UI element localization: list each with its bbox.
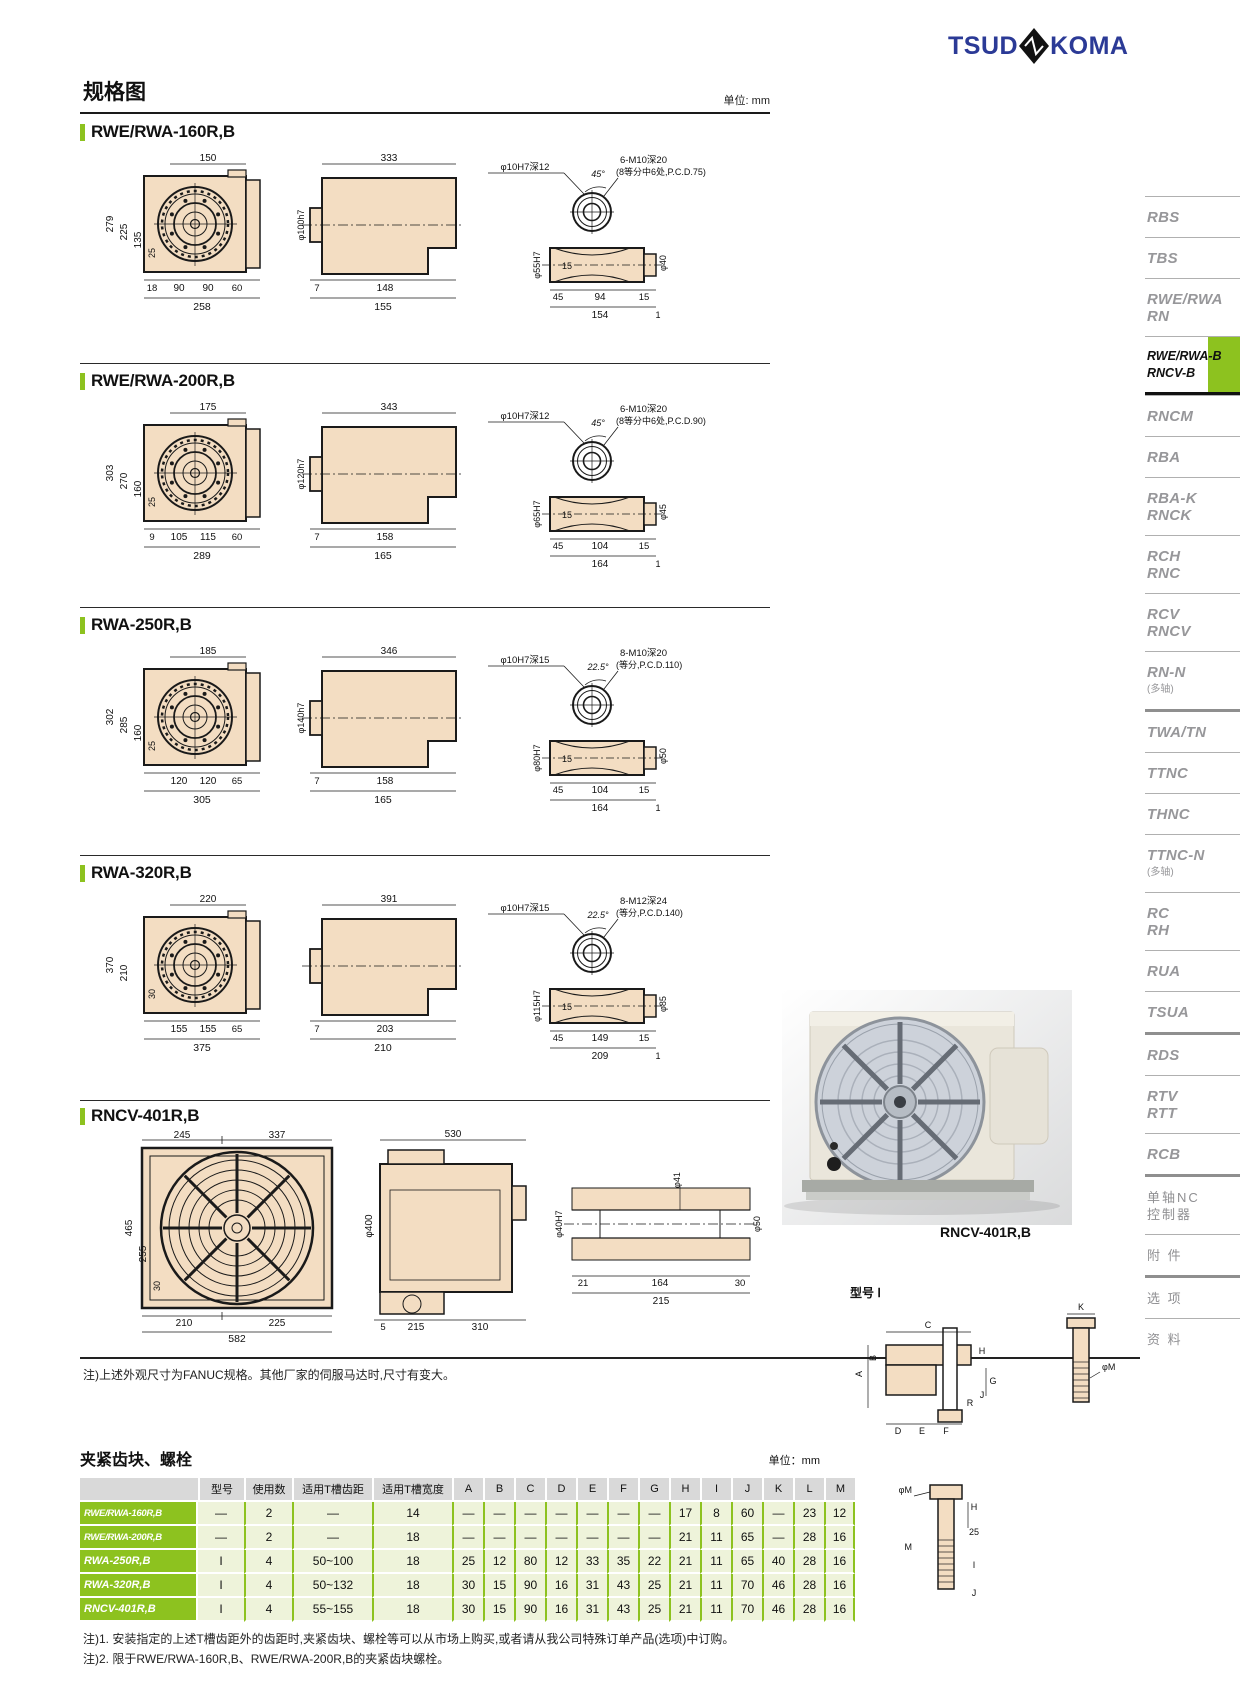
sidebar-item-rcb[interactable]: RCB — [1145, 1133, 1240, 1174]
table-cell: 15 — [483, 1574, 514, 1598]
table-cell: 21 — [669, 1598, 700, 1622]
drawing-rwe-rwa-200: 17530327016025910511560289343φ120h771581… — [80, 399, 780, 574]
sidebar-item-label: (多轴) — [1147, 681, 1240, 698]
dim-label: φ115H7 — [532, 990, 542, 1022]
section-title: RNCV-401R,B — [91, 1106, 199, 1126]
dim-label: F — [943, 1426, 949, 1436]
sidebar-item-label: RNCV-B — [1147, 365, 1240, 382]
dim-label: 270 — [119, 472, 130, 489]
table-cell: 4 — [244, 1598, 292, 1622]
table-cell: 17 — [669, 1502, 700, 1526]
dim-label: φ41 — [672, 1172, 682, 1188]
dim-label: 158 — [377, 532, 394, 543]
table-cell: 30 — [452, 1574, 483, 1598]
model-type-label: 型号 Ⅰ — [850, 1284, 881, 1301]
sidebar-item-label: RTT — [1147, 1105, 1240, 1122]
dim-label: φ50 — [752, 1216, 762, 1232]
dim-label: 22.5° — [586, 662, 609, 672]
dim-label: 45° — [591, 169, 605, 179]
dim-label: (等分,P.C.D.110) — [616, 659, 682, 670]
dim-label: 1 — [655, 1051, 660, 1061]
sidebar-item-label: RNC — [1147, 565, 1240, 582]
dim-label: 25 — [147, 497, 157, 507]
sidebar-item-rua[interactable]: RUA — [1145, 950, 1240, 991]
fanuc-note: 注)上述外观尺寸为FANUC规格。其他厂家的伺服马达时,尺寸有变大。 — [83, 1366, 455, 1383]
dim-label: 8-M10深20 — [620, 648, 667, 659]
dim-label: 7 — [314, 283, 319, 294]
sidebar-item-rba-k[interactable]: RBA-KRNCK — [1145, 477, 1240, 535]
table-cell: — — [638, 1526, 669, 1550]
dim-label: 303 — [105, 464, 116, 481]
table-cell: 11 — [700, 1574, 731, 1598]
table-cell: 80 — [514, 1550, 545, 1574]
table-cell: — — [452, 1526, 483, 1550]
table-cell: I — [198, 1598, 244, 1622]
product-photo — [782, 990, 1072, 1225]
sidebar-item-label: RDS — [1147, 1047, 1240, 1064]
table-header: H — [669, 1478, 700, 1502]
sidebar-item-label: 资 料 — [1147, 1331, 1240, 1348]
green-bar-icon — [80, 617, 85, 634]
table-cell: — — [762, 1526, 793, 1550]
sidebar-item-rba[interactable]: RBA — [1145, 436, 1240, 477]
section-divider — [80, 607, 770, 608]
dim-label: 220 — [200, 894, 217, 905]
dim-label: 45 — [553, 292, 564, 303]
dim-label: J — [980, 1390, 985, 1400]
dim-label: 582 — [228, 1333, 246, 1345]
section-header-rwe-rwa-160: RWE/RWA-160R,B — [80, 122, 235, 142]
green-bar-icon — [80, 865, 85, 882]
table-cell: 18 — [372, 1526, 452, 1550]
dim-label: 465 — [124, 1219, 135, 1236]
dim-label: 22.5° — [586, 910, 609, 920]
table-cell: — — [514, 1502, 545, 1526]
table-cell: 11 — [700, 1598, 731, 1622]
logo-text-right: KOMA — [1050, 32, 1128, 61]
table-cell: 55~155 — [292, 1598, 372, 1622]
sidebar-item-label: TBS — [1147, 250, 1240, 267]
dim-label: φ100h7 — [296, 210, 306, 241]
table-header: L — [793, 1478, 824, 1502]
table-cell: 46 — [762, 1598, 793, 1622]
sidebar-item-label: 单轴NC — [1147, 1189, 1240, 1206]
dim-label: φ45 — [658, 504, 668, 520]
dim-label: φM — [899, 1485, 912, 1495]
section-drawing: 22037021030155155653753917203210φ10H7深15… — [105, 894, 683, 1062]
dim-label: K — [1078, 1302, 1084, 1312]
sidebar-item-label: RH — [1147, 922, 1240, 939]
dim-label: 302 — [105, 708, 116, 725]
dim-label: 245 — [174, 1130, 191, 1141]
section-header-rncv-401: RNCV-401R,B — [80, 1106, 199, 1126]
dim-label: 530 — [445, 1130, 462, 1140]
sidebar-item-cn-22[interactable]: 选 项 — [1145, 1275, 1240, 1318]
table-cell: 25 — [452, 1550, 483, 1574]
section-divider — [80, 855, 770, 856]
table-cell: 2 — [244, 1502, 292, 1526]
section-header-rwe-rwa-200: RWE/RWA-200R,B — [80, 371, 235, 391]
dim-label: 225 — [269, 1318, 286, 1329]
model-name-cell: RWA-320R,B — [80, 1574, 198, 1598]
dim-label: 203 — [377, 1024, 394, 1035]
section-divider — [80, 1100, 770, 1101]
dim-label: 289 — [193, 550, 211, 562]
table-cell: 28 — [793, 1550, 824, 1574]
clamp-unit-label: 单位：mm — [690, 1452, 820, 1468]
clamp-diagram: CABGHJDEFRKφMφM25MHIJ — [846, 1300, 1146, 1630]
dim-label: 305 — [193, 794, 211, 806]
dim-label: 333 — [381, 153, 398, 164]
dim-label: 90 — [173, 283, 185, 294]
title-rule — [80, 112, 770, 114]
table-cell: 18 — [372, 1574, 452, 1598]
dim-label: 25 — [147, 741, 157, 751]
dim-label: 15 — [562, 754, 572, 764]
table-cell: — — [292, 1502, 372, 1526]
table-cell: 15 — [483, 1598, 514, 1622]
dim-label: 115 — [200, 532, 216, 543]
table-cell: 21 — [669, 1526, 700, 1550]
dim-label: 165 — [374, 794, 392, 806]
table-cell: 28 — [793, 1598, 824, 1622]
dim-label: 285 — [119, 716, 130, 733]
table-cell: 90 — [514, 1574, 545, 1598]
model-name-cell: RWE/RWA-200R,B — [80, 1526, 198, 1550]
dim-label: 215 — [408, 1322, 425, 1333]
sidebar-item-label: RBA — [1147, 449, 1240, 466]
table-header: A — [452, 1478, 483, 1502]
table-header: D — [545, 1478, 576, 1502]
unit-label: 单位: mm — [640, 92, 770, 108]
table-cell: — — [198, 1502, 244, 1526]
sidebar-item-rwe-rwa[interactable]: RWE/RWARN — [1145, 278, 1240, 336]
dim-label: 258 — [193, 301, 211, 313]
catalog-page: TSUD KOMA 规格图 单位: mm RWE/RWA-160R,B 1502… — [0, 0, 1240, 1688]
dim-label: 15 — [639, 292, 650, 303]
table-header: 适用T槽宽度 — [372, 1478, 452, 1502]
sidebar-item-label: TSUA — [1147, 1004, 1240, 1021]
dim-label: φ40H7 — [554, 1210, 564, 1237]
dim-label: (8等分中6处,P.C.D.90) — [616, 415, 706, 426]
dim-label: 1 — [655, 310, 660, 320]
dim-label: φ10H7深12 — [501, 162, 550, 173]
dim-label: 25 — [969, 1527, 979, 1537]
dim-label: J — [972, 1588, 977, 1598]
drawing-rwa-250: 1853022851602512012065305346φ140h7715816… — [80, 643, 780, 818]
clamp-bolt-figures: CABGHJDEFRKφMφM25MHIJ — [854, 1302, 1115, 1598]
dim-label: 94 — [594, 292, 606, 303]
dim-label: C — [925, 1320, 932, 1330]
dim-label: 7 — [314, 532, 319, 543]
dim-label: 155 — [171, 1024, 188, 1035]
dim-label: φ55H7 — [532, 251, 542, 278]
dim-label: 8-M12深24 — [620, 896, 667, 907]
dim-label: 154 — [592, 310, 609, 321]
sidebar-item-ttnc-n[interactable]: TTNC-N(多轴) — [1145, 834, 1240, 892]
table-cell: 21 — [669, 1574, 700, 1598]
table-cell: 28 — [793, 1574, 824, 1598]
sidebar-item-rtv[interactable]: RTVRTT — [1145, 1075, 1240, 1133]
table-cell: — — [545, 1502, 576, 1526]
sidebar-item-rcv[interactable]: RCVRNCV — [1145, 593, 1240, 651]
table-cell: 21 — [669, 1550, 700, 1574]
dim-label: 337 — [269, 1130, 286, 1141]
table-cell: 11 — [700, 1526, 731, 1550]
clamp-note-1: 注)1. 安装指定的上述T槽齿距外的齿距时,夹紧齿块、螺栓等可以从市场上购买,或… — [83, 1630, 734, 1647]
dim-label: 60 — [232, 532, 243, 543]
dim-label: φ40 — [658, 255, 668, 271]
dim-label: 6-M10深20 — [620, 155, 667, 166]
table-header: F — [607, 1478, 638, 1502]
product-nav: RBSTBSRWE/RWARNRWE/RWA-BRNCV-BRNCMRBARBA… — [1145, 196, 1240, 1359]
dim-label: φ10H7深12 — [501, 411, 550, 422]
table-cell: 50~100 — [292, 1550, 372, 1574]
sidebar-item-label: RNCM — [1147, 408, 1240, 425]
table-header: E — [576, 1478, 607, 1502]
dim-label: 1 — [655, 803, 660, 813]
table-header: 适用T槽齿距 — [292, 1478, 372, 1502]
dim-label: 30 — [147, 989, 157, 999]
table-cell: 60 — [731, 1502, 762, 1526]
table-cell: 90 — [514, 1598, 545, 1622]
table-cell: 46 — [762, 1574, 793, 1598]
table-cell: — — [638, 1502, 669, 1526]
sidebar-item-label: 控制器 — [1147, 1206, 1240, 1223]
dim-label: 175 — [200, 402, 217, 413]
sidebar-item-label: RBS — [1147, 209, 1240, 226]
clamp-table: 型号使用数适用T槽齿距适用T槽宽度ABCDEFGHIJKLMRWE/RWA-16… — [80, 1478, 855, 1622]
table-cell: 18 — [372, 1550, 452, 1574]
sidebar-item-rn-n[interactable]: RN-N(多轴) — [1145, 651, 1240, 709]
dim-label: 370 — [105, 956, 116, 973]
dim-label: 45 — [553, 785, 564, 796]
table-cell: 2 — [244, 1526, 292, 1550]
clamp-section-title: 夹紧齿块、螺栓 — [80, 1446, 192, 1470]
dim-label: 120 — [171, 776, 188, 787]
sidebar-item-rwe-rwa-b[interactable]: RWE/RWA-BRNCV-B — [1145, 336, 1240, 395]
table-cell: 12 — [483, 1550, 514, 1574]
dim-label: φ85 — [658, 996, 668, 1012]
section-title: RWA-320R,B — [91, 863, 192, 883]
green-bar-icon — [80, 1108, 85, 1125]
dim-label: G — [989, 1376, 996, 1386]
dim-label: A — [854, 1371, 864, 1377]
dim-label: 45 — [553, 1033, 564, 1044]
table-header: 型号 — [198, 1478, 244, 1502]
clamp-note-2: 注)2. 限于RWE/RWA-160R,B、RWE/RWA-200R,B的夹紧齿… — [83, 1650, 449, 1667]
table-cell: 35 — [607, 1550, 638, 1574]
dim-label: 45° — [591, 418, 605, 428]
table-cell: — — [292, 1526, 372, 1550]
sidebar-item-thnc[interactable]: THNC — [1145, 793, 1240, 834]
sidebar-item-tsua[interactable]: TSUA — [1145, 991, 1240, 1032]
sidebar-item-label: RCB — [1147, 1146, 1240, 1163]
sidebar-item-label: RTV — [1147, 1088, 1240, 1105]
table-cell: 70 — [731, 1598, 762, 1622]
sidebar-item-label: RBA-K — [1147, 490, 1240, 507]
dim-label: B — [868, 1355, 878, 1361]
model-name-cell: RWE/RWA-160R,B — [80, 1502, 198, 1526]
dim-label: I — [973, 1560, 976, 1570]
dim-label: 30 — [152, 1281, 162, 1291]
dim-label: 164 — [592, 803, 609, 814]
table-cell: 4 — [244, 1574, 292, 1598]
table-cell: — — [576, 1526, 607, 1550]
table-cell: I — [198, 1550, 244, 1574]
drawing-rwe-rwa-160: 1502792251352518909060258333φ100h7714815… — [80, 150, 780, 325]
section-title: RWA-250R,B — [91, 615, 192, 635]
dim-label: φ65H7 — [532, 500, 542, 527]
table-cell: 16 — [545, 1574, 576, 1598]
table-cell: 40 — [762, 1550, 793, 1574]
table-cell: — — [545, 1526, 576, 1550]
dim-label: 150 — [200, 153, 217, 164]
dim-label: 160 — [133, 724, 144, 741]
dim-label: 90 — [202, 283, 214, 294]
sidebar-item-label: RN — [1147, 308, 1240, 325]
sidebar-item-rch[interactable]: RCHRNC — [1145, 535, 1240, 593]
table-cell: 65 — [731, 1550, 762, 1574]
dim-label: 65 — [232, 1024, 243, 1035]
table-cell: 43 — [607, 1598, 638, 1622]
table-cell: 12 — [545, 1550, 576, 1574]
dim-label: 160 — [133, 480, 144, 497]
table-header — [80, 1478, 198, 1502]
sidebar-item-nc[interactable]: 单轴NC控制器 — [1145, 1174, 1240, 1234]
dim-label: 209 — [592, 1051, 609, 1062]
sidebar-item-label: (多轴) — [1147, 864, 1240, 881]
dim-label: 255 — [138, 1245, 149, 1262]
table-header: 使用数 — [244, 1478, 292, 1502]
table-cell: 65 — [731, 1526, 762, 1550]
section-drawing: 1853022851602512012065305346φ140h7715816… — [105, 646, 682, 814]
sidebar-item-rc[interactable]: RCRH — [1145, 892, 1240, 950]
table-cell: 25 — [638, 1598, 669, 1622]
dim-label: M — [905, 1542, 913, 1552]
dim-label: φ10H7深15 — [501, 655, 550, 666]
sidebar-item-label: TTNC-N — [1147, 847, 1240, 864]
table-cell: 23 — [793, 1502, 824, 1526]
sidebar-item-cn-23[interactable]: 资 料 — [1145, 1318, 1240, 1359]
table-header: I — [700, 1478, 731, 1502]
sidebar-item-twa-tn[interactable]: TWA/TN — [1145, 709, 1240, 752]
dim-label: φ80H7 — [532, 744, 542, 771]
table-cell: 28 — [793, 1526, 824, 1550]
dim-label: 25 — [147, 248, 157, 258]
sidebar-item-label: TWA/TN — [1147, 724, 1240, 741]
dim-label: φ140h7 — [296, 703, 306, 734]
dim-label: 210 — [119, 964, 130, 981]
dim-label: 60 — [232, 283, 243, 294]
dim-label: D — [895, 1426, 902, 1436]
dim-label: 135 — [133, 231, 144, 248]
dim-label: 6-M10深20 — [620, 404, 667, 415]
logo-diamond-icon — [1019, 28, 1049, 64]
dim-label: 9 — [149, 532, 154, 543]
drawing-rncv-401: 24533746525530210225582530φ4005215310φ41… — [80, 1130, 780, 1345]
dim-label: (等分,P.C.D.140) — [616, 907, 683, 918]
logo-text-left: TSUD — [948, 32, 1018, 61]
dim-label: 391 — [381, 894, 398, 905]
dim-label: 15 — [562, 510, 572, 520]
sidebar-item-rbs[interactable]: RBS — [1145, 196, 1240, 237]
dim-label: 149 — [592, 1033, 609, 1044]
table-cell: 11 — [700, 1550, 731, 1574]
sidebar-item-label: RNCK — [1147, 507, 1240, 524]
dim-label: 65 — [232, 776, 243, 787]
sidebar-item-tbs[interactable]: TBS — [1145, 237, 1240, 278]
sidebar-item-label: 选 项 — [1147, 1290, 1240, 1307]
sidebar-item-label: THNC — [1147, 806, 1240, 823]
photo-caption: RNCV-401R,B — [940, 1224, 1031, 1240]
green-bar-icon — [80, 124, 85, 141]
table-cell: I — [198, 1574, 244, 1598]
dim-label: 310 — [472, 1322, 489, 1333]
dim-label: 45 — [553, 541, 564, 552]
dim-label: 15 — [562, 1002, 572, 1012]
table-cell: 43 — [607, 1574, 638, 1598]
dim-label: (8等分中6处,P.C.D.75) — [616, 166, 706, 177]
dim-label: 21 — [578, 1278, 589, 1289]
table-cell: 31 — [576, 1598, 607, 1622]
table-cell: 30 — [452, 1598, 483, 1622]
dim-label: 343 — [381, 402, 398, 413]
dim-label: 225 — [119, 223, 130, 240]
dim-label: 15 — [562, 261, 572, 271]
table-cell: — — [198, 1526, 244, 1550]
section-header-rwa-320: RWA-320R,B — [80, 863, 192, 883]
dim-label: φ400 — [364, 1214, 375, 1238]
dim-label: 375 — [193, 1042, 211, 1054]
dim-label: H — [971, 1502, 978, 1512]
dim-label: 158 — [377, 776, 394, 787]
dim-label: 215 — [653, 1296, 670, 1307]
sidebar-item-label: TTNC — [1147, 765, 1240, 782]
dim-label: 15 — [639, 785, 650, 796]
section-title: RWE/RWA-160R,B — [91, 122, 235, 142]
dim-label: 30 — [735, 1278, 746, 1289]
dim-label: 105 — [171, 532, 188, 543]
table-cell: — — [452, 1502, 483, 1526]
table-cell: 22 — [638, 1550, 669, 1574]
sidebar-item-rncm[interactable]: RNCM — [1145, 395, 1240, 436]
sidebar-item-ttnc[interactable]: TTNC — [1145, 752, 1240, 793]
dim-label: 155 — [200, 1024, 217, 1035]
dim-label: 15 — [639, 1033, 650, 1044]
dim-label: 7 — [314, 1024, 319, 1035]
table-cell: 50~132 — [292, 1574, 372, 1598]
table-cell: 16 — [545, 1598, 576, 1622]
dim-label: 165 — [374, 550, 392, 562]
dim-label: H — [979, 1346, 986, 1356]
table-cell: 18 — [372, 1598, 452, 1622]
sidebar-item-cn-21[interactable]: 附 件 — [1145, 1234, 1240, 1275]
sidebar-item-label: RC — [1147, 905, 1240, 922]
dim-label: 210 — [176, 1318, 193, 1329]
green-bar-icon — [80, 373, 85, 390]
drawing-rwa-320: 22037021030155155653753917203210φ10H7深15… — [80, 891, 780, 1066]
dim-label: 346 — [381, 646, 398, 657]
table-header: G — [638, 1478, 669, 1502]
page-title: 规格图 — [83, 76, 146, 106]
logo: TSUD KOMA — [948, 28, 1128, 64]
dim-label: 210 — [374, 1042, 392, 1054]
sidebar-item-rds[interactable]: RDS — [1145, 1032, 1240, 1075]
table-cell: 70 — [731, 1574, 762, 1598]
model-name-cell: RWA-250R,B — [80, 1550, 198, 1574]
dim-label: 104 — [592, 785, 609, 796]
